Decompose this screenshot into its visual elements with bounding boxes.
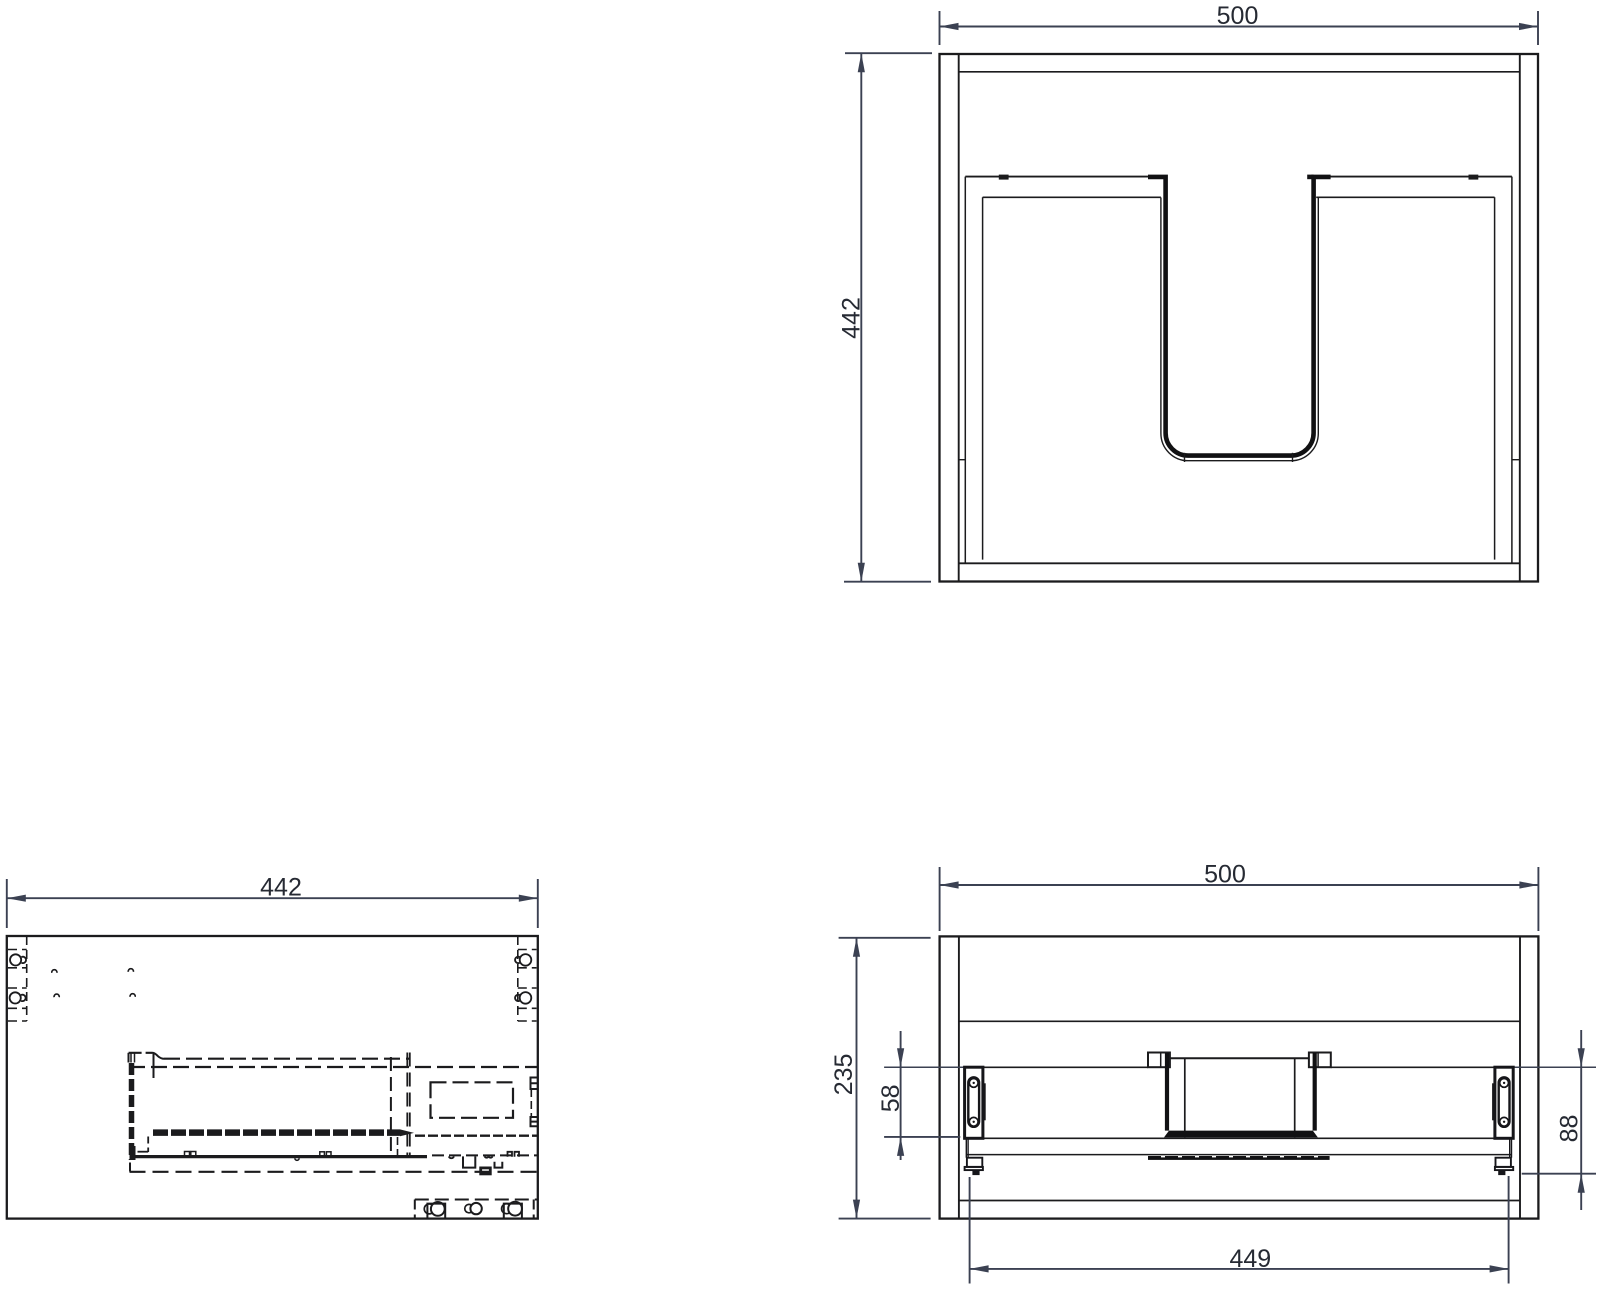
svg-text:442: 442 [260, 874, 302, 902]
svg-text:442: 442 [838, 297, 866, 339]
svg-text:500: 500 [1217, 2, 1259, 30]
svg-text:449: 449 [1229, 1245, 1271, 1273]
svg-text:88: 88 [1556, 1115, 1584, 1143]
svg-text:500: 500 [1204, 861, 1246, 889]
svg-text:235: 235 [830, 1054, 858, 1096]
svg-text:58: 58 [877, 1084, 905, 1112]
